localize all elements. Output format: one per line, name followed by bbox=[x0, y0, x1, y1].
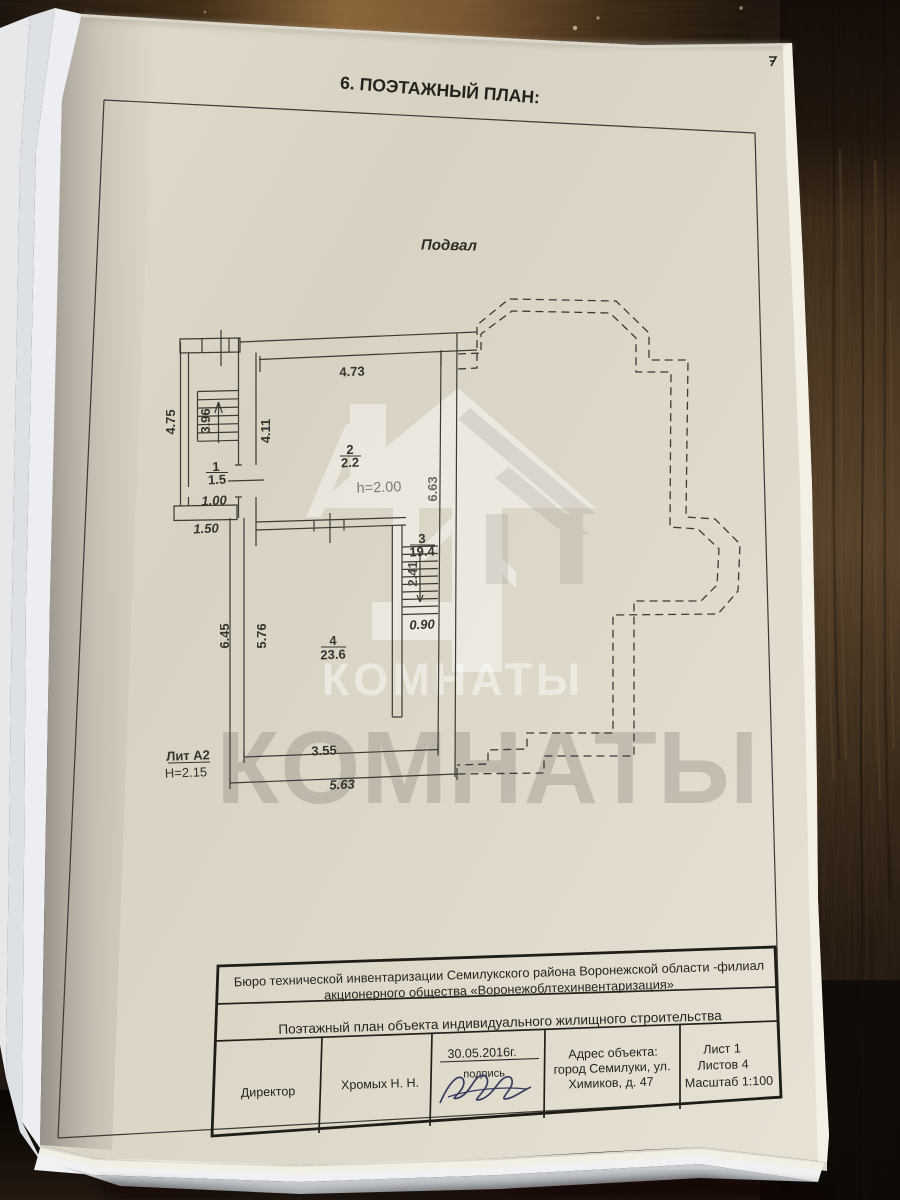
svg-text:6.45: 6.45 bbox=[217, 623, 232, 648]
svg-text:2.41: 2.41 bbox=[405, 561, 420, 586]
svg-text:Директор: Директор bbox=[241, 1084, 296, 1100]
svg-text:23.6: 23.6 bbox=[320, 647, 346, 663]
svg-text:Хромых Н. Н.: Хромых Н. Н. bbox=[341, 1076, 419, 1092]
svg-text:1.5: 1.5 bbox=[208, 472, 227, 488]
svg-text:Подвал: Подвал bbox=[421, 237, 478, 255]
svg-text:5.76: 5.76 bbox=[254, 623, 269, 648]
svg-text:Листов 4: Листов 4 bbox=[697, 1057, 749, 1073]
svg-text:4.75: 4.75 bbox=[163, 409, 178, 434]
svg-text:КОМНАТЫ: КОМНАТЫ bbox=[322, 654, 584, 705]
svg-text:3.96: 3.96 bbox=[198, 408, 213, 433]
svg-text:4.11: 4.11 bbox=[258, 419, 273, 444]
svg-text:1.50: 1.50 bbox=[193, 521, 220, 537]
svg-text:19.4: 19.4 bbox=[409, 544, 436, 560]
svg-text:2.2: 2.2 bbox=[341, 455, 360, 471]
svg-text:КОМНАТЫ: КОМНАТЫ bbox=[216, 710, 759, 825]
svg-text:Химиков, д. 47: Химиков, д. 47 bbox=[568, 1075, 654, 1092]
svg-text:0.90: 0.90 bbox=[409, 617, 436, 633]
svg-text:4: 4 bbox=[329, 633, 338, 648]
svg-text:Масштаб 1:100: Масштаб 1:100 bbox=[685, 1074, 774, 1091]
svg-text:4.73: 4.73 bbox=[339, 364, 365, 380]
svg-text:Лит А2: Лит А2 bbox=[166, 747, 210, 764]
svg-text:1.00: 1.00 bbox=[201, 493, 228, 509]
svg-text:6.63: 6.63 bbox=[425, 476, 440, 501]
svg-text:h=2.00: h=2.00 bbox=[356, 479, 401, 497]
svg-text:Н=2.15: Н=2.15 bbox=[165, 764, 208, 780]
svg-text:Адрес объекта:: Адрес объекта: bbox=[568, 1045, 658, 1062]
svg-text:Лист 1: Лист 1 bbox=[703, 1041, 741, 1056]
svg-text:5.63: 5.63 bbox=[329, 777, 356, 793]
svg-text:30.05.2016г.: 30.05.2016г. bbox=[447, 1045, 516, 1061]
svg-text:подпись: подпись bbox=[463, 1067, 505, 1080]
svg-text:3.55: 3.55 bbox=[311, 743, 337, 759]
